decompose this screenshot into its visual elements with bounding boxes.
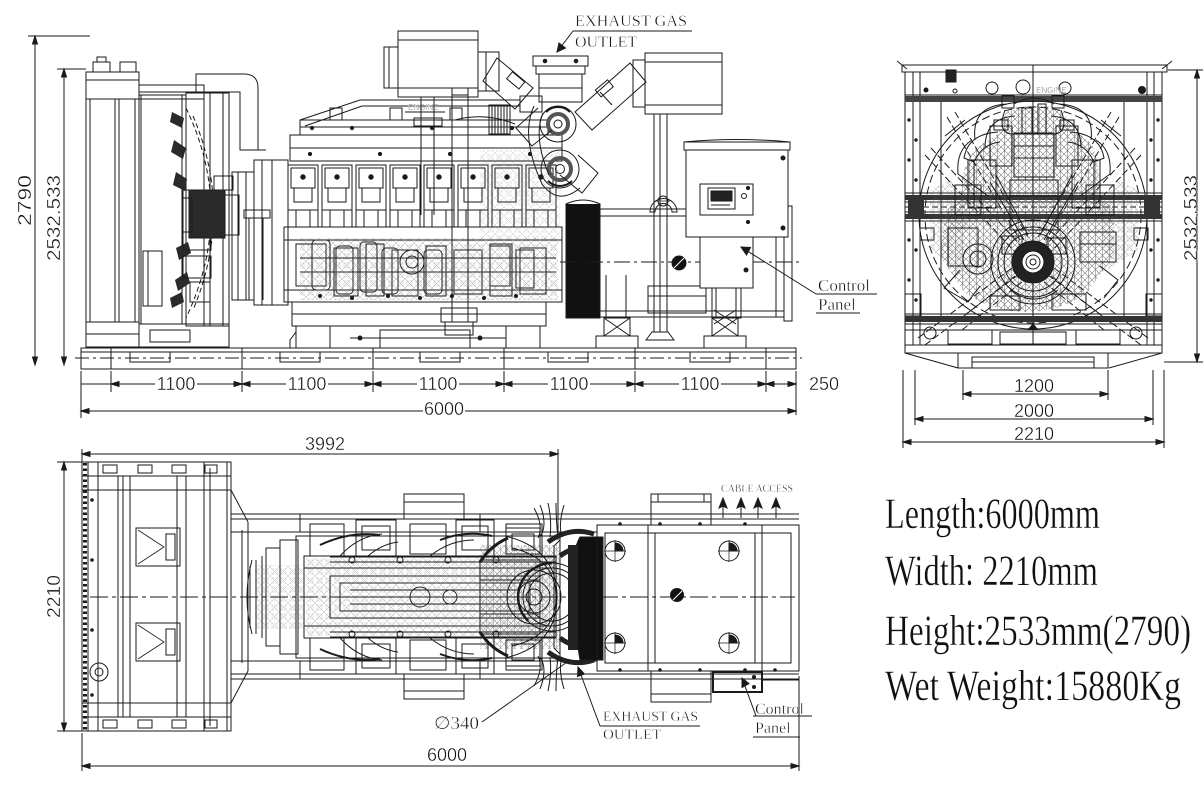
svg-text:1100: 1100 bbox=[419, 374, 458, 394]
svg-text:Control: Control bbox=[818, 276, 870, 295]
svg-text:Width: 2210mm: Width: 2210mm bbox=[885, 548, 1098, 595]
svg-text:2790: 2790 bbox=[15, 175, 35, 226]
svg-text:1100: 1100 bbox=[157, 374, 196, 394]
svg-text:EXHAUST GAS: EXHAUST GAS bbox=[603, 709, 698, 725]
svg-text:2532.533: 2532.533 bbox=[44, 175, 64, 261]
svg-text:ENGINE: ENGINE bbox=[1036, 86, 1067, 95]
svg-text:6000: 6000 bbox=[427, 745, 467, 765]
svg-text:2532.533: 2532.533 bbox=[1181, 175, 1201, 261]
svg-text:2210: 2210 bbox=[44, 575, 64, 618]
svg-text:2210: 2210 bbox=[1014, 424, 1054, 444]
svg-text:6000: 6000 bbox=[424, 399, 464, 419]
svg-text:Control: Control bbox=[755, 701, 804, 718]
svg-text:Length:6000mm: Length:6000mm bbox=[885, 491, 1100, 538]
svg-text:1100: 1100 bbox=[550, 374, 589, 394]
svg-text:Panel: Panel bbox=[818, 295, 856, 314]
svg-text:Height:2533mm(2790): Height:2533mm(2790) bbox=[885, 608, 1191, 655]
svg-text:1100: 1100 bbox=[288, 374, 327, 394]
svg-text:OUTLET: OUTLET bbox=[575, 34, 637, 51]
svg-text:Wet Weight:15880Kg: Wet Weight:15880Kg bbox=[885, 663, 1181, 710]
svg-text:250: 250 bbox=[809, 374, 839, 394]
svg-text:2000: 2000 bbox=[1014, 401, 1054, 421]
svg-text:CABLE ACCESS: CABLE ACCESS bbox=[721, 481, 793, 495]
svg-text:Panel: Panel bbox=[755, 720, 791, 737]
svg-text:1100: 1100 bbox=[681, 374, 720, 394]
svg-text:EXHAUST GAS: EXHAUST GAS bbox=[575, 13, 687, 30]
svg-text:1200: 1200 bbox=[1014, 376, 1054, 396]
svg-text:3992: 3992 bbox=[305, 434, 345, 454]
svg-text:∅340: ∅340 bbox=[434, 713, 479, 733]
svg-text:OUTLET: OUTLET bbox=[603, 727, 661, 743]
